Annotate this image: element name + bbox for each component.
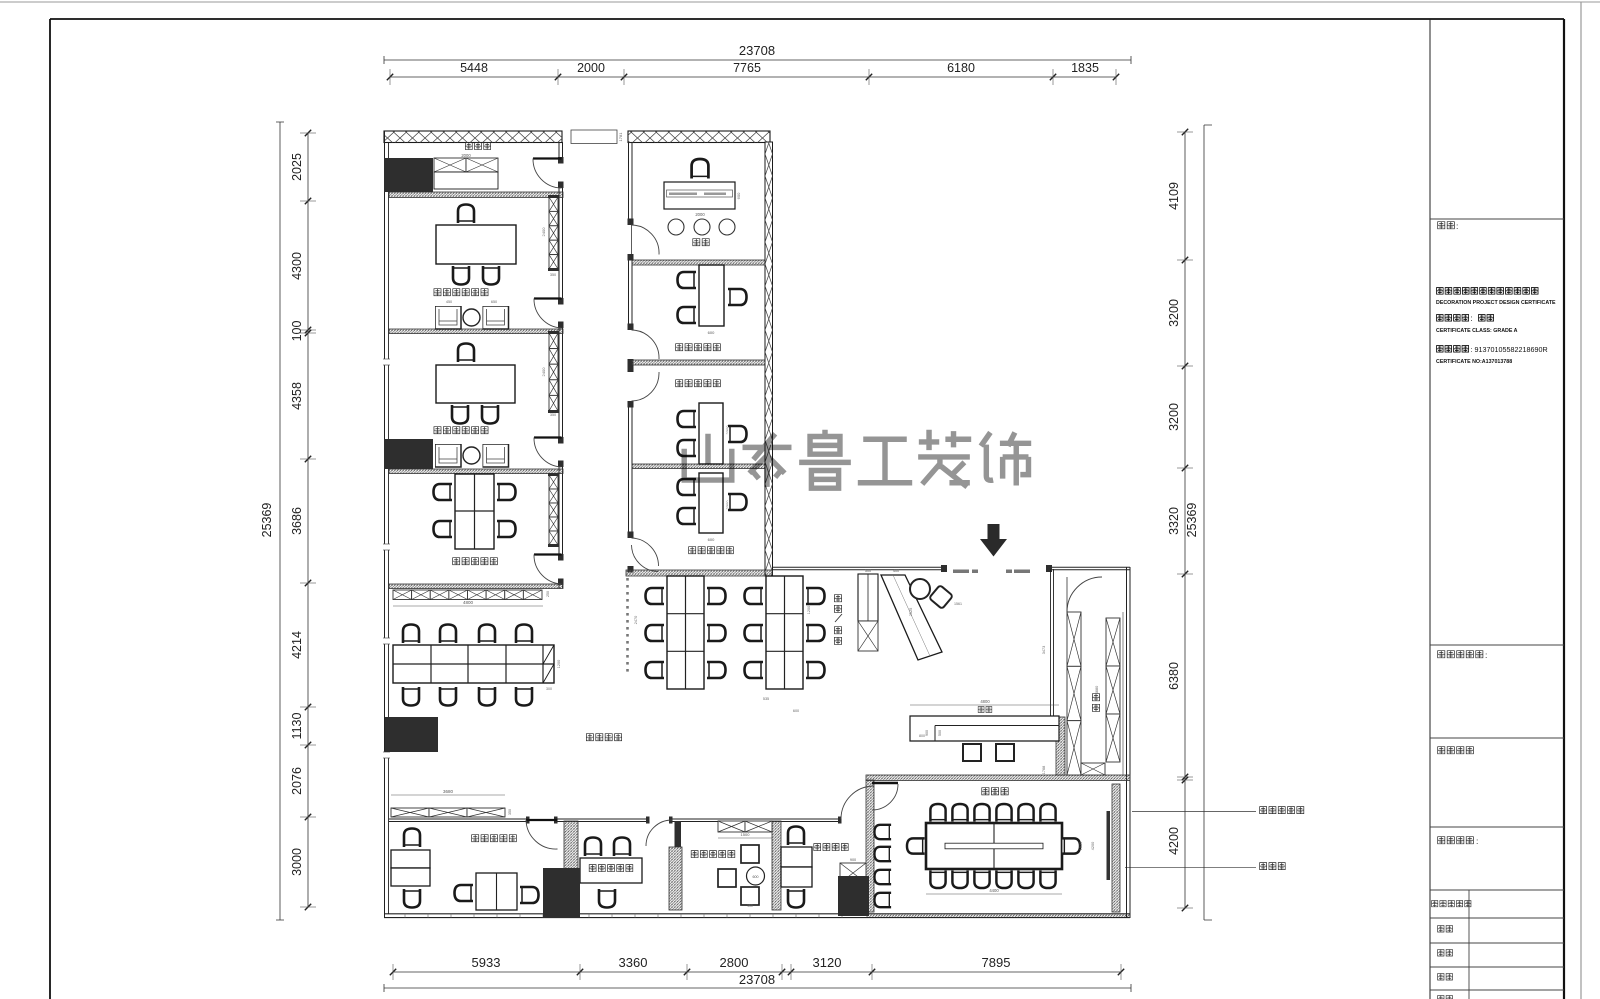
svg-text:1130: 1130 — [290, 713, 304, 740]
svg-text:600: 600 — [753, 875, 759, 879]
svg-text:3680: 3680 — [443, 789, 454, 794]
svg-text:7895: 7895 — [982, 955, 1011, 970]
svg-text:4214: 4214 — [290, 631, 304, 659]
svg-text:1835: 1835 — [1071, 61, 1099, 75]
svg-text:150: 150 — [747, 904, 753, 908]
svg-text:CERTIFICATE NO:A137013788: CERTIFICATE NO:A137013788 — [1436, 359, 1512, 365]
svg-text::: : — [1456, 221, 1458, 231]
svg-text::: : — [1485, 650, 1487, 660]
svg-text:1200: 1200 — [557, 660, 561, 668]
svg-text:1500: 1500 — [741, 832, 751, 837]
svg-text:1530: 1530 — [1079, 842, 1083, 850]
svg-text:250: 250 — [546, 591, 550, 597]
svg-text:900: 900 — [850, 858, 856, 862]
svg-text:6380: 6380 — [1167, 662, 1181, 690]
svg-text:25369: 25369 — [260, 503, 274, 538]
svg-text:3200: 3200 — [1167, 403, 1181, 431]
svg-text:3000: 3000 — [290, 848, 304, 876]
svg-text:1768: 1768 — [1042, 766, 1046, 774]
svg-text:350: 350 — [508, 809, 512, 815]
svg-text:4109: 4109 — [1167, 182, 1181, 210]
svg-text:2000: 2000 — [695, 212, 705, 217]
svg-text:400: 400 — [893, 569, 899, 573]
svg-text:4200: 4200 — [1167, 827, 1181, 855]
svg-text:3686: 3686 — [290, 507, 304, 535]
svg-text:3320: 3320 — [1167, 507, 1181, 535]
svg-text:4800: 4800 — [980, 699, 990, 704]
svg-text:3473: 3473 — [1042, 646, 1046, 654]
svg-text:4200: 4200 — [1091, 842, 1095, 850]
svg-text:600: 600 — [736, 192, 741, 199]
svg-text:350: 350 — [550, 413, 556, 417]
svg-text:450: 450 — [446, 300, 452, 304]
svg-text:3200: 3200 — [1167, 299, 1181, 327]
svg-text:4800: 4800 — [463, 600, 474, 605]
svg-text:23708: 23708 — [739, 972, 775, 987]
svg-text:2400: 2400 — [541, 227, 546, 237]
svg-text::: : — [1476, 836, 1478, 846]
svg-text:2800: 2800 — [720, 955, 749, 970]
svg-text:3120: 3120 — [813, 955, 842, 970]
svg-text:DECORATION PROJECT DESIGN CERT: DECORATION PROJECT DESIGN CERTIFICATE — [1436, 300, 1556, 306]
svg-text:23708: 23708 — [739, 43, 775, 58]
svg-text:1781: 1781 — [618, 132, 623, 142]
svg-text:100: 100 — [290, 321, 304, 342]
svg-text:900: 900 — [925, 730, 929, 736]
svg-text:CERTIFICATE CLASS: GRADE A: CERTIFICATE CLASS: GRADE A — [1436, 328, 1518, 334]
svg-text:: 91370105582218690R: : 91370105582218690R — [1471, 345, 1548, 354]
svg-text:7765: 7765 — [733, 61, 761, 75]
svg-text:1561: 1561 — [954, 602, 962, 606]
svg-text:2525: 2525 — [909, 608, 913, 616]
svg-text:350: 350 — [550, 273, 556, 277]
svg-text:3360: 3360 — [619, 955, 648, 970]
svg-text:535: 535 — [763, 697, 769, 701]
svg-text:2470: 2470 — [634, 616, 638, 624]
svg-text:500: 500 — [938, 730, 942, 736]
svg-text:2076: 2076 — [290, 767, 304, 795]
svg-text:4680: 4680 — [1095, 686, 1099, 694]
svg-text:300: 300 — [546, 687, 552, 691]
svg-text:4300: 4300 — [290, 252, 304, 280]
svg-text:1200: 1200 — [807, 606, 811, 614]
svg-text:650: 650 — [491, 300, 497, 304]
svg-text:2025: 2025 — [290, 153, 304, 181]
svg-text:4400: 4400 — [989, 888, 999, 893]
svg-text:2000: 2000 — [577, 61, 605, 75]
svg-text:5448: 5448 — [460, 61, 488, 75]
svg-text:6180: 6180 — [947, 61, 975, 75]
svg-text::: : — [1471, 314, 1473, 323]
svg-text:600: 600 — [708, 537, 715, 542]
svg-text:600: 600 — [708, 330, 715, 335]
svg-text:500: 500 — [865, 569, 871, 573]
svg-text:25369: 25369 — [1185, 503, 1199, 538]
svg-text:2400: 2400 — [541, 367, 546, 377]
svg-text:600: 600 — [793, 709, 799, 713]
svg-text:2000: 2000 — [461, 153, 471, 158]
svg-text:4358: 4358 — [290, 382, 304, 410]
svg-text:5933: 5933 — [472, 955, 501, 970]
